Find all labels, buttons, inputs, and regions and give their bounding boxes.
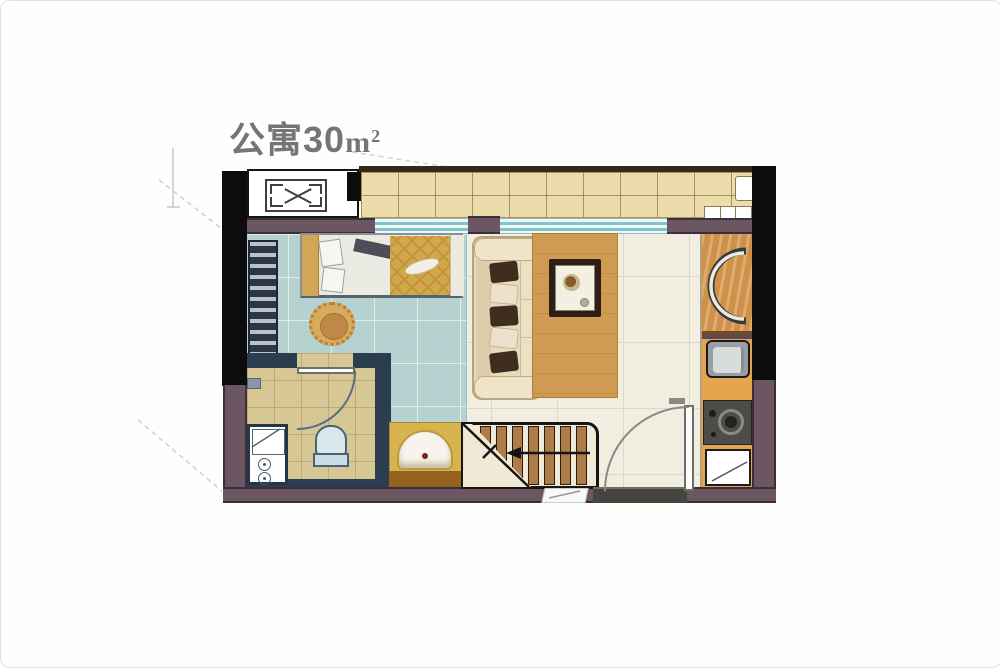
bed-pillow	[321, 267, 346, 294]
counter-divider	[702, 334, 752, 339]
shower-faucet-icon	[247, 378, 261, 389]
table-tray	[555, 265, 595, 311]
cushion	[489, 305, 518, 327]
balcony-outer-wall	[359, 166, 752, 172]
washer-icon	[721, 207, 737, 218]
window-pier	[468, 216, 500, 234]
staircase	[461, 422, 599, 489]
cup-icon	[580, 298, 589, 307]
bed-blanket	[390, 236, 450, 295]
cushion	[489, 283, 519, 305]
stool-chair	[309, 302, 355, 346]
appliance-cabinet	[705, 449, 751, 486]
wall-left-upper	[222, 171, 247, 386]
burner-center-icon	[725, 416, 737, 428]
wall-right-upper	[752, 166, 776, 381]
bed-foot-fold	[450, 235, 464, 296]
stair-tread	[528, 426, 539, 485]
cushion	[489, 350, 519, 373]
bed-pillow	[318, 239, 343, 268]
wall-right-lower	[752, 380, 776, 502]
toilet-tank	[313, 453, 349, 467]
sink-basin	[713, 347, 744, 373]
double-bed	[300, 233, 463, 298]
floorplan-card: 公寓30m2	[0, 0, 1000, 668]
stair-tread	[560, 426, 571, 485]
bracket-icon	[270, 184, 283, 194]
burner-icon	[258, 472, 271, 485]
wall-step	[347, 172, 361, 201]
feather-decor	[403, 255, 441, 278]
bracket-icon	[270, 197, 283, 207]
kitchen-sink	[706, 340, 750, 378]
knob-icon	[711, 432, 716, 437]
washer-icon	[736, 207, 751, 218]
wall-left-lower	[223, 385, 247, 499]
stair-tread	[496, 426, 507, 485]
stair-tread	[544, 426, 555, 485]
stair-tread	[512, 426, 523, 485]
wall-right-of-window	[667, 218, 752, 234]
door-closer-icon	[669, 398, 685, 404]
wall-under-ac	[247, 218, 375, 234]
window-glass-line	[375, 222, 667, 225]
bathroom-door-leaf	[297, 367, 355, 374]
vanity-sink	[252, 429, 285, 455]
stair-tread	[576, 426, 587, 485]
entry-step-label	[541, 488, 588, 503]
balcony-window	[375, 218, 667, 234]
washer-icon	[705, 207, 721, 218]
bathroom-wall-top-left	[247, 353, 297, 368]
title-unit: m	[345, 126, 371, 159]
entry-door-leaf	[684, 405, 694, 491]
plate-icon	[563, 274, 580, 291]
stool-cushion	[320, 313, 348, 340]
cushion	[489, 261, 519, 284]
title-name: 公寓	[229, 119, 303, 160]
wardrobe	[248, 240, 278, 358]
drain-icon	[422, 453, 428, 459]
sofa-cushions	[490, 262, 520, 376]
page-title: 公寓30m2	[229, 111, 381, 163]
toilet-bowl	[315, 425, 347, 455]
washbasin-cabinet-front	[389, 471, 469, 487]
window-glass-line	[375, 228, 667, 231]
bed-headboard	[302, 235, 319, 296]
stair-tread	[480, 426, 491, 485]
gas-cooktop	[703, 400, 752, 445]
title-unit-sup: 2	[371, 126, 381, 146]
title-area: 30	[303, 119, 345, 160]
cushion	[489, 327, 519, 350]
bathroom-vanity	[247, 424, 288, 485]
knob-icon	[709, 410, 716, 417]
coffee-table	[549, 259, 601, 317]
ac-unit-symbol	[265, 179, 327, 212]
burner-icon	[258, 458, 271, 471]
balcony	[361, 172, 752, 218]
entry-threshold	[593, 487, 687, 503]
kitchen-counter	[702, 234, 752, 334]
